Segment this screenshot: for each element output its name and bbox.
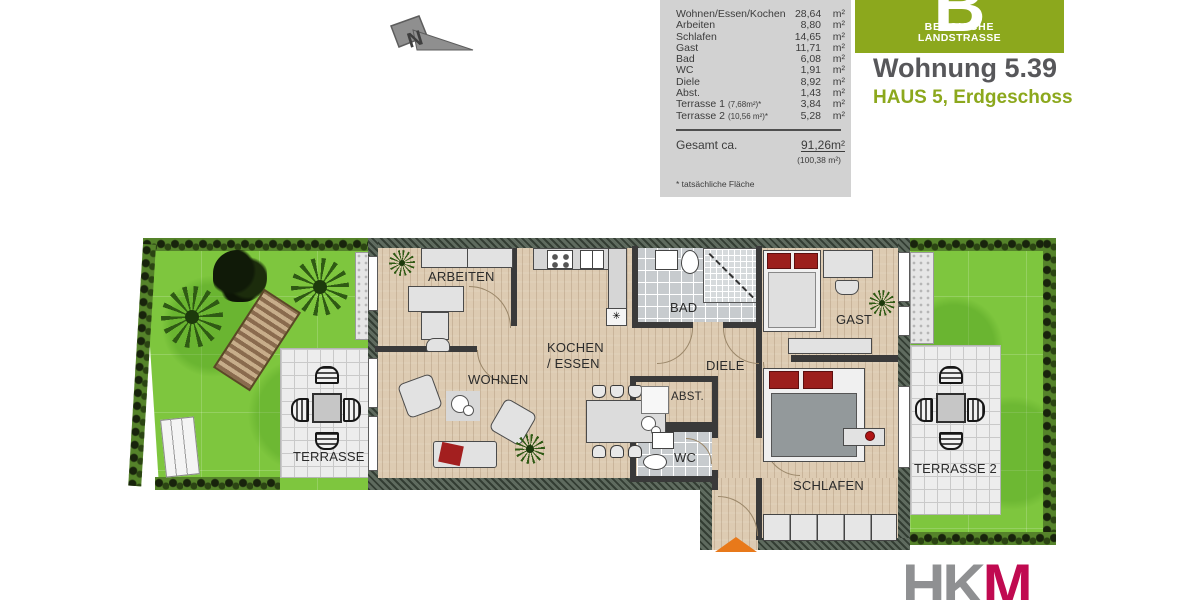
room-label-schlafen: SCHLAFEN <box>793 478 864 493</box>
wall <box>368 238 910 248</box>
sink-icon <box>652 432 674 449</box>
red-throw <box>438 442 464 466</box>
desk <box>823 250 873 278</box>
window <box>368 256 378 311</box>
coffee-table <box>463 405 474 416</box>
north-arrow: N <box>383 10 478 58</box>
sun-lounger <box>160 416 200 477</box>
bed-pillow <box>769 371 799 389</box>
hkm-letter-m: M <box>983 552 1030 600</box>
dining-chair <box>628 385 642 398</box>
room-label-arbeiten: ARBEITEN <box>428 269 495 284</box>
room-label-terrasse1: TERRASSE 1 <box>293 449 375 464</box>
patio-chair <box>291 398 309 422</box>
area-table: Wohnen/Essen/Kochen 28,64m² Arbeiten8,80… <box>660 0 851 197</box>
toilet-icon <box>643 454 667 470</box>
wall <box>630 476 718 482</box>
desk <box>408 286 464 312</box>
room-label-wohnen: WOHNEN <box>468 372 528 387</box>
wall <box>632 246 638 322</box>
fridge-icon <box>580 250 604 269</box>
palm-plant <box>389 250 415 276</box>
shower-diagonal <box>709 253 754 298</box>
sideboard <box>788 338 872 354</box>
dining-chair <box>592 385 606 398</box>
patio-chair <box>939 432 963 450</box>
nightstand <box>843 428 885 446</box>
hedge <box>910 532 1056 545</box>
patio-chair <box>915 398 933 422</box>
patio-chair <box>315 432 339 450</box>
room-label-diele: DIELE <box>706 358 745 373</box>
wall <box>791 355 898 362</box>
wall <box>712 470 718 490</box>
wall <box>633 376 718 382</box>
table-total-row: Gesamt ca. 91,26m² <box>676 140 845 152</box>
room-label-kochen: KOCHEN / ESSEN <box>547 340 604 372</box>
dining-chair <box>610 445 624 458</box>
mattress <box>768 272 816 328</box>
palm-plant <box>869 290 895 316</box>
gravel-strip <box>910 252 934 344</box>
shower <box>703 248 758 303</box>
room-label-wc: WC <box>674 450 696 465</box>
dishwasher: ✳ <box>606 308 627 326</box>
floor-plan: TERRASSE 1 <box>143 238 1056 553</box>
patio-table <box>936 393 966 423</box>
page-subtitle: HAUS 5, Erdgeschoss <box>873 87 1073 109</box>
terrace-door <box>898 386 910 468</box>
patio-chair <box>343 398 361 422</box>
room-label-terrasse2: TERRASSE 2 <box>910 461 1001 476</box>
hedge <box>155 477 280 490</box>
patio-chair <box>967 398 985 422</box>
page-title: Wohnung 5.39 <box>873 53 1057 84</box>
palm-plant <box>161 286 223 348</box>
patio-table <box>312 393 342 423</box>
wardrobe <box>763 514 897 541</box>
duvet <box>771 393 857 457</box>
hkm-logo: HKM <box>902 556 1030 600</box>
room-label-bad: BAD <box>670 300 697 315</box>
dining-chair <box>628 445 642 458</box>
bed-pillow <box>794 253 818 269</box>
palm-plant <box>515 434 545 464</box>
hedge <box>143 238 375 251</box>
desk-chair <box>426 338 450 352</box>
table-divider <box>676 129 841 131</box>
stove-icon <box>547 250 573 269</box>
hedge <box>1043 238 1056 545</box>
room-label-gast: GAST <box>836 312 872 327</box>
brand-line2: LANDSTRASSE <box>855 32 1064 44</box>
bed-pillow <box>803 371 833 389</box>
hedge <box>910 238 1056 251</box>
floorplan-page: N Wohnen/Essen/Kochen 28,64m² Arbeiten8,… <box>0 0 1200 600</box>
table-footnote: * tatsächliche Fläche <box>676 179 845 189</box>
kitchen-counter <box>608 248 627 310</box>
brand-logo: B BERGISCHE LANDSTRASSE <box>855 0 1064 53</box>
patio-set <box>913 356 989 462</box>
table-total-alt: (100,38 m²) <box>676 155 841 165</box>
window <box>898 306 910 336</box>
desk <box>421 312 449 340</box>
terrace-door <box>368 358 378 408</box>
dining-chair <box>610 385 624 398</box>
palm-plant <box>291 258 349 316</box>
wall <box>700 538 712 550</box>
room-label-abst: ABST. <box>671 391 704 403</box>
entrance-arrow <box>715 537 757 552</box>
window <box>898 252 910 302</box>
patio-set <box>289 356 365 462</box>
patio-chair <box>315 366 339 384</box>
bed-pillow <box>767 253 791 269</box>
hkm-letters-hk: HK <box>902 552 983 600</box>
dining-chair <box>592 445 606 458</box>
shelf <box>421 248 513 268</box>
patio-chair <box>939 366 963 384</box>
red-lamp-dot <box>865 431 875 441</box>
table-row: Terrasse 2 (10,56 m²)*5,28m² <box>676 111 845 122</box>
wall <box>712 376 718 438</box>
sink-icon <box>655 250 678 270</box>
storage-box <box>641 386 669 414</box>
desk-chair <box>835 280 859 295</box>
terrace-door <box>368 416 378 471</box>
toilet-icon <box>681 250 699 274</box>
